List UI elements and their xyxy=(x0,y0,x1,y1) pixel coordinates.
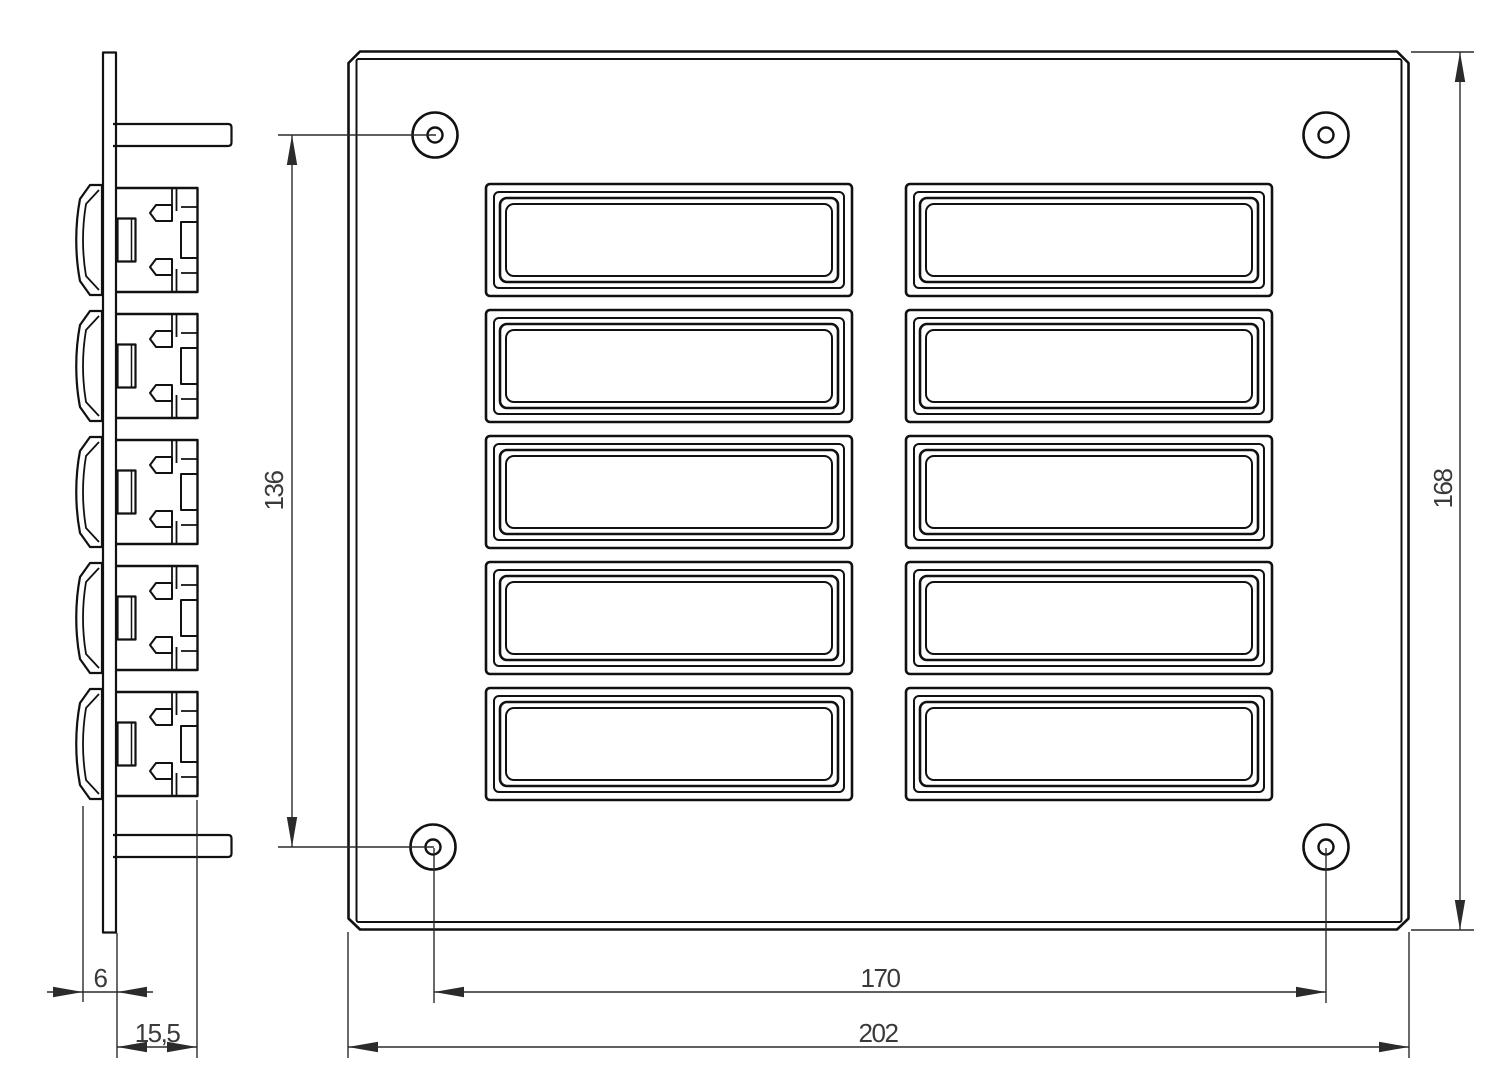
dimension-label-6: 6 xyxy=(94,963,108,993)
dimension-label-168: 168 xyxy=(1428,469,1458,509)
dimension-label-136: 136 xyxy=(259,471,289,511)
dimension-label-202: 202 xyxy=(859,1018,899,1048)
technical-drawing-canvas: 136 168 170 202 6 15,5 xyxy=(0,0,1500,1089)
dimension-label-15-5: 15,5 xyxy=(135,1018,181,1048)
drawing-svg: 136 168 170 202 6 15,5 xyxy=(0,0,1500,1089)
drawing-background xyxy=(0,0,1500,1089)
dimension-label-170: 170 xyxy=(861,963,901,993)
